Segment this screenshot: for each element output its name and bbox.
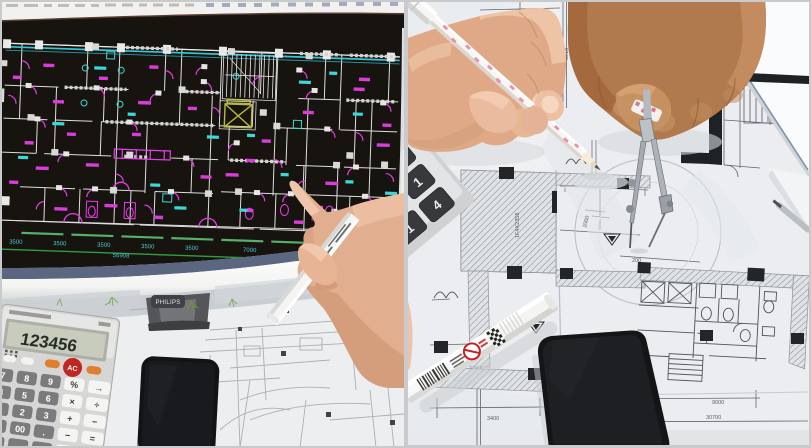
svg-text:30700: 30700: [706, 415, 721, 421]
svg-text:3500: 3500: [53, 241, 67, 247]
svg-text:AC: AC: [67, 365, 78, 373]
svg-text:9000: 9000: [712, 400, 724, 406]
svg-text:%: %: [70, 379, 79, 390]
svg-text:00: 00: [14, 424, 25, 435]
svg-text:→: →: [94, 383, 104, 394]
svg-text:3500: 3500: [9, 239, 23, 245]
svg-text:3500: 3500: [97, 243, 111, 249]
svg-text:3500: 3500: [141, 244, 155, 250]
svg-text:1F4X2358: 1F4X2358: [515, 213, 521, 238]
svg-text:56908: 56908: [113, 253, 131, 260]
svg-text:PHILIPS: PHILIPS: [155, 300, 180, 306]
svg-text:7000: 7000: [243, 248, 257, 254]
svg-text:3400: 3400: [487, 416, 499, 422]
svg-text:200: 200: [632, 258, 641, 264]
svg-text:3500: 3500: [185, 246, 199, 252]
